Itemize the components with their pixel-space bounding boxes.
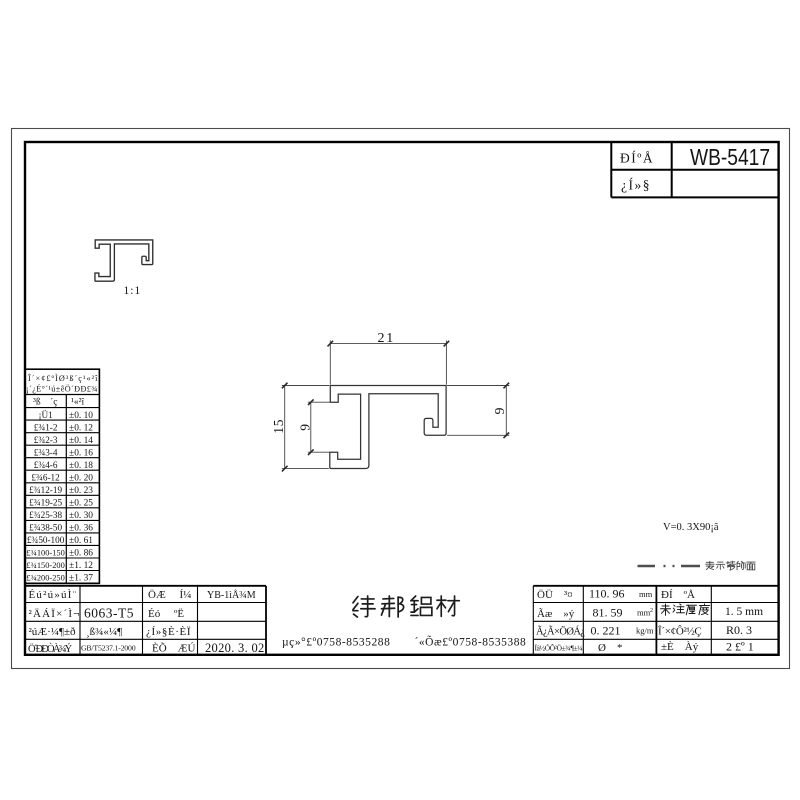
svg-text:±0. 25: ±0. 25	[69, 499, 93, 509]
svg-text:9: 9	[492, 407, 507, 414]
svg-text:£¾6-12: £¾6-12	[31, 472, 60, 482]
svg-text:±0. 36: ±0. 36	[69, 524, 93, 534]
svg-text:9: 9	[298, 424, 313, 431]
svg-text:2 £º 1: 2 £º 1	[726, 639, 754, 653]
svg-text:±0. 23: ±0. 23	[69, 486, 93, 496]
svg-text:ÖÆ Í¼: ÖÆ Í¼	[148, 589, 191, 601]
svg-text:£¾50-100: £¾50-100	[27, 535, 65, 545]
svg-text:V=0. 3X90¡ã: V=0. 3X90¡ã	[663, 522, 719, 533]
svg-text:£¾12-19: £¾12-19	[29, 485, 62, 495]
svg-text:£¾150-200: £¾150-200	[26, 561, 64, 570]
svg-text:±0. 12: ±0. 12	[69, 423, 93, 433]
svg-text:£¾2-3: £¾2-3	[34, 435, 58, 445]
svg-text:Î´×¢£ºÌØ³ß´ç¹«²î: Î´×¢£ºÌØ³ß´ç¹«²î	[28, 373, 98, 383]
svg-text:±0. 86: ±0. 86	[69, 549, 93, 559]
svg-text:±0. 61: ±0. 61	[69, 536, 93, 546]
svg-text:±0. 16: ±0. 16	[69, 448, 93, 458]
svg-text:±0. 10: ±0. 10	[69, 411, 93, 421]
svg-text:Ãæ »ý: Ãæ »ý	[537, 608, 575, 620]
svg-text:ÐÍºÅ: ÐÍºÅ	[620, 151, 654, 166]
svg-text:1. 5 mm: 1. 5 mm	[725, 606, 763, 618]
svg-text:¸ß¾«¼¶: ¸ß¾«¼¶	[86, 626, 122, 638]
svg-text:³ß ´ç: ³ß ´ç	[33, 397, 57, 408]
svg-text:£¾25-38: £¾25-38	[29, 510, 62, 520]
svg-text:¿Í»§: ¿Í»§	[621, 178, 651, 193]
svg-text:£¾100-150: £¾100-150	[26, 549, 64, 558]
svg-text:Éó ºË: Éó ºË	[148, 608, 184, 620]
svg-text:mm: mm	[637, 608, 651, 618]
svg-text:±0. 18: ±0. 18	[69, 461, 93, 471]
svg-text:Ö´ÐÐÒÀ¾Ý: Ö´ÐÐÒÀ¾Ý	[28, 643, 73, 655]
svg-text:£¾19-25: £¾19-25	[29, 498, 62, 508]
svg-text:WB-5417: WB-5417	[690, 144, 770, 170]
svg-text:mm: mm	[639, 589, 653, 599]
svg-text:±0. 30: ±0. 30	[69, 511, 93, 521]
svg-text:R0. 3: R0. 3	[726, 623, 752, 637]
svg-text:µç»°£º0758-8535288 ´«Õæ£º0758: µç»°£º0758-8535288 ´«Õæ£º0758-8535388	[282, 634, 526, 648]
svg-text:ÐÍ ºÅ: ÐÍ ºÅ	[661, 589, 695, 601]
svg-text:Ø *: Ø *	[598, 642, 622, 654]
svg-text:2020. 3. 02: 2020. 3. 02	[205, 641, 265, 655]
svg-text:ÖÜ ³¤: ÖÜ ³¤	[537, 589, 573, 601]
svg-text:110. 96: 110. 96	[589, 587, 625, 601]
svg-text:£¾1-2: £¾1-2	[34, 422, 58, 432]
svg-text:Ã¿Ã×ÖØÁ¿: Ã¿Ã×ÖØÁ¿	[536, 625, 585, 637]
svg-text:²ÄÁÏ×´Ì¬: ²ÄÁÏ×´Ì¬	[29, 608, 81, 620]
svg-text:±1. 37: ±1. 37	[69, 574, 93, 584]
svg-text:Éú²ú»úÌ¨: Éú²ú»úÌ¨	[29, 589, 78, 601]
svg-text:21: 21	[378, 331, 396, 346]
svg-text:GB/T5237.1-2000: GB/T5237.1-2000	[81, 643, 136, 652]
svg-text:kg/m: kg/m	[636, 626, 654, 636]
svg-text:¹«²î: ¹«²î	[71, 398, 84, 408]
svg-text:Íâ½ÓÔ²Ö±¾¶±¼: Íâ½ÓÔ²Ö±¾¶±¼	[535, 643, 584, 653]
svg-text:£¾4-6: £¾4-6	[34, 460, 58, 470]
svg-text:£¾200-250: £¾200-250	[26, 574, 64, 583]
svg-text:¡Ü1: ¡Ü1	[38, 410, 53, 420]
svg-text:¡´¿É°´¹ú±êÖ´ÐÐ£¾: ¡´¿É°´¹ú±êÖ´ÐÐ£¾	[26, 384, 97, 394]
svg-text:81. 59: 81. 59	[593, 605, 623, 619]
svg-text:£¾3-4: £¾3-4	[34, 447, 58, 457]
svg-text:ÈÕ ÆÚ: ÈÕ ÆÚ	[152, 642, 195, 654]
svg-text:0. 221: 0. 221	[591, 623, 621, 637]
svg-text:±0. 20: ±0. 20	[69, 473, 93, 483]
svg-text:YB-1ìÅ¾M: YB-1ìÅ¾M	[207, 589, 256, 601]
svg-text:±1. 12: ±1. 12	[69, 561, 93, 571]
svg-text:15: 15	[271, 419, 286, 434]
svg-text:1:1: 1:1	[124, 285, 142, 297]
svg-text:²úÆ·¼¶±ð: ²úÆ·¼¶±ð	[29, 626, 77, 638]
svg-text:Î´×¢Ô²½Ç: Î´×¢Ô²½Ç	[658, 625, 701, 637]
svg-text:6063-T5: 6063-T5	[84, 605, 134, 620]
svg-text:£¾38-50: £¾38-50	[29, 523, 62, 533]
svg-text:¿Í»§È·ÈÏ: ¿Í»§È·ÈÏ	[146, 626, 191, 638]
svg-text:±0. 14: ±0. 14	[69, 436, 93, 446]
svg-text:±È Àý: ±È Àý	[661, 641, 699, 653]
svg-text:2: 2	[650, 608, 653, 614]
